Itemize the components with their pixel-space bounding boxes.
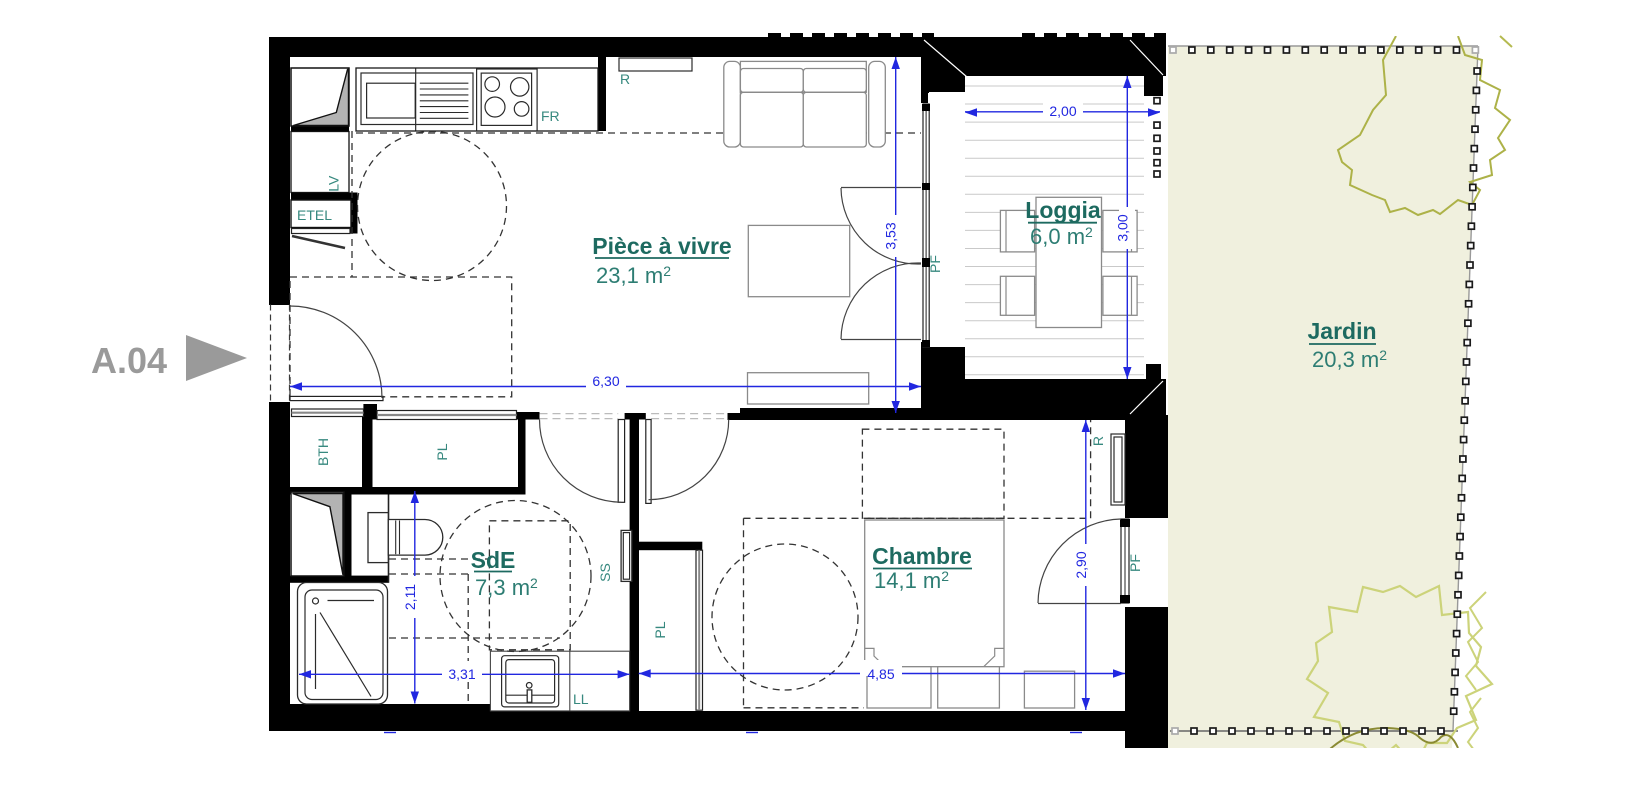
svg-text:23,1 m2: 23,1 m2	[596, 263, 671, 288]
svg-text:FR: FR	[541, 108, 560, 124]
svg-text:PL: PL	[652, 621, 668, 638]
svg-text:SdE: SdE	[471, 547, 516, 573]
svg-text:PL: PL	[434, 443, 450, 460]
svg-text:LL: LL	[573, 691, 589, 707]
svg-text:Jardin: Jardin	[1307, 318, 1376, 344]
svg-text:A.04: A.04	[91, 340, 167, 381]
svg-text:Loggia: Loggia	[1025, 197, 1101, 223]
svg-text:6,0 m2: 6,0 m2	[1030, 224, 1093, 249]
svg-text:2,11: 2,11	[402, 584, 418, 610]
svg-text:R: R	[620, 71, 630, 87]
svg-text:14,1 m2: 14,1 m2	[874, 568, 949, 593]
svg-text:PF: PF	[1127, 554, 1143, 572]
svg-text:2,90: 2,90	[1073, 551, 1089, 578]
svg-text:BTH: BTH	[315, 438, 331, 466]
svg-text:ETEL: ETEL	[297, 207, 332, 223]
svg-text:7,3 m2: 7,3 m2	[475, 575, 538, 600]
svg-text:Pièce à vivre: Pièce à vivre	[592, 233, 731, 259]
svg-text:3,31: 3,31	[448, 666, 475, 682]
svg-text:2,00: 2,00	[1049, 103, 1076, 119]
svg-text:3,00: 3,00	[1114, 214, 1130, 241]
svg-text:SS: SS	[597, 563, 613, 582]
svg-text:3,53: 3,53	[883, 222, 899, 249]
svg-text:Chambre: Chambre	[872, 543, 972, 569]
svg-text:R: R	[1090, 436, 1106, 446]
svg-text:6,30: 6,30	[592, 373, 619, 389]
svg-text:20,3 m2: 20,3 m2	[1312, 347, 1387, 372]
svg-text:LV: LV	[326, 175, 342, 192]
svg-text:PF: PF	[927, 255, 943, 273]
svg-text:4,85: 4,85	[867, 666, 894, 682]
